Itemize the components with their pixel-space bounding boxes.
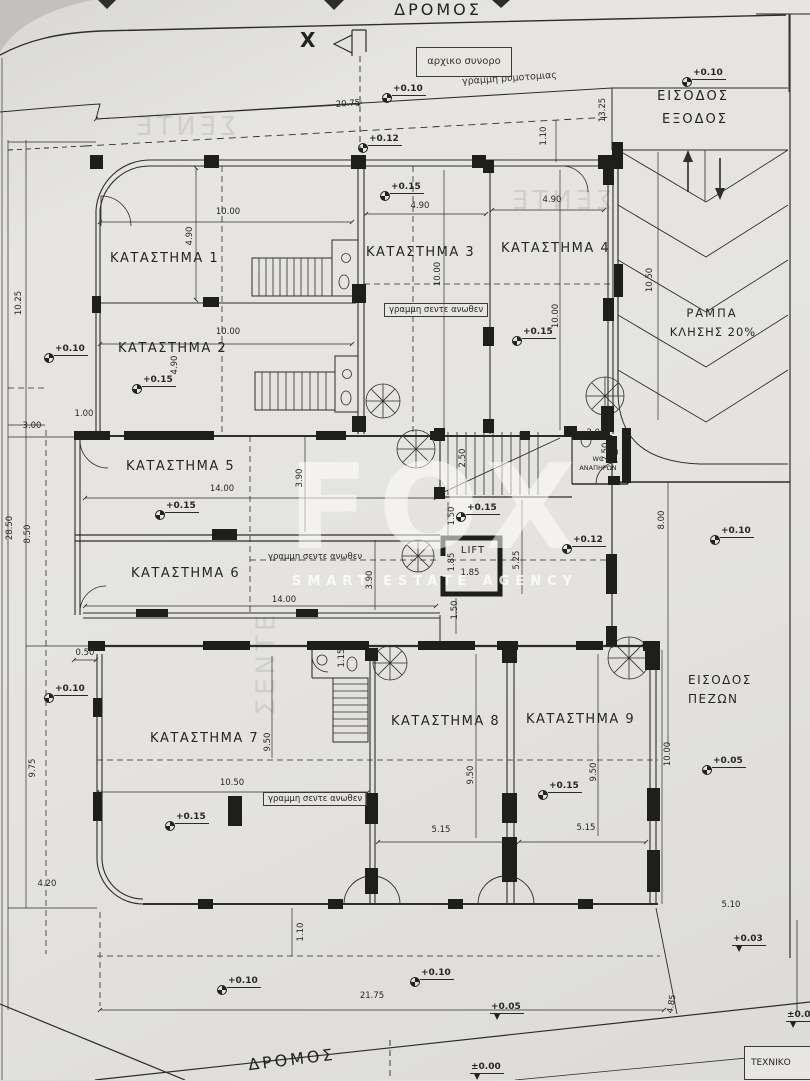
canopy-line-label: γραμμη σεντε ανωθεν	[268, 552, 362, 562]
dimension-label: 14.00	[210, 484, 234, 494]
dimension-label: 10.00	[216, 207, 240, 217]
dimension-label: 10.50	[645, 268, 655, 292]
dimension-label: 9.50	[589, 763, 599, 782]
dimension-label: 2.50	[458, 449, 468, 468]
bleedthrough-ghost-text: ΣΕΝΤΕ	[251, 611, 281, 716]
dimension-label: 4.90	[170, 356, 180, 375]
accessible-wc-label: WC ΑΝΑΠΗΡΩΝ	[570, 455, 626, 473]
level-mark: +0.15	[522, 327, 556, 339]
shop-label: ΚΑΤΑΣΤΗΜΑ 9	[526, 712, 635, 727]
canopy-line-label: γραμμη σεντε ανωθεν	[263, 792, 367, 806]
dimension-label: 4.85	[665, 994, 678, 1014]
level-mark: +0.10	[54, 684, 88, 696]
technical-title-text: ΤΕΧΝΙΚΟ	[751, 1058, 791, 1068]
wc-label-line2: ΑΝΑΠΗΡΩΝ	[579, 464, 616, 472]
floor-plan-page: { "texts": { "road_top": "ΔΡΟΜΟΣ", "road…	[0, 0, 810, 1080]
level-mark: +0.10	[227, 976, 261, 988]
dimension-label: 5.25	[512, 551, 522, 570]
level-mark: +0.15	[390, 182, 424, 194]
dimension-label: 3.90	[295, 469, 305, 488]
dimension-label: 9.50	[466, 766, 476, 785]
bleedthrough-ghost-text: ΣΕΝΤΕ	[132, 112, 237, 142]
dimension-label: 10.50	[220, 778, 244, 788]
dimension-label: 8.50	[23, 525, 33, 544]
shop-label: ΚΑΤΑΣΤΗΜΑ 6	[131, 566, 240, 581]
level-mark: +0.03	[732, 934, 766, 946]
shop-label: ΚΑΤΑΣΤΗΜΑ 7	[150, 731, 259, 746]
vehicle-exit-label: ΕΞΟΔΟΣ	[650, 112, 740, 127]
level-mark: +0.05	[490, 1002, 524, 1014]
level-mark: ±0.0	[786, 1010, 810, 1022]
dimension-label: 10.00	[663, 742, 673, 766]
shop-label: ΚΑΤΑΣΤΗΜΑ 8	[391, 714, 500, 729]
dimension-label: 8.00	[657, 511, 667, 530]
dimension-label: 5.15	[577, 823, 596, 833]
level-mark: +0.10	[692, 68, 726, 80]
ramp-label: ΡΑΜΠΑ	[662, 306, 762, 320]
dimension-label: 4.90	[411, 201, 430, 211]
canopy-line-label: γραμμη σεντε ανωθεν	[384, 303, 488, 317]
pedestrian-label-line1: ΕΙΣΟΔΟΣ	[688, 673, 752, 687]
dimension-label: 5.15	[432, 825, 451, 835]
dimension-label: 1.85	[447, 553, 457, 572]
dimension-label: 10.00	[216, 327, 240, 337]
shop-label: ΚΑΤΑΣΤΗΜΑ 3	[366, 245, 475, 260]
dimension-label: 2.50	[601, 443, 611, 462]
dimension-label: 9.75	[28, 759, 38, 778]
bleedthrough-ghost-text: ΣΕΝΤΕ	[508, 186, 613, 216]
level-mark: +0.15	[466, 503, 500, 515]
dimension-label: 1.85	[461, 568, 480, 578]
road-label-top: ΔΡΟΜΟΣ	[388, 0, 488, 19]
dimension-label: 1.10	[539, 127, 549, 146]
pedestrian-entrance-label: ΕΙΣΟΔΟΣ ΠΕΖΩΝ	[688, 671, 774, 708]
level-mark: +0.15	[548, 781, 582, 793]
ramp-slope-label: ΚΛΗΣΗΣ 20%	[654, 325, 772, 339]
dimension-label: 1.10	[296, 923, 306, 942]
dimension-label: 1.50	[450, 601, 460, 620]
pedestrian-label-line2: ΠΕΖΩΝ	[688, 692, 738, 706]
dimension-label: 9.50	[263, 733, 273, 752]
dimension-label: 4.20	[38, 879, 57, 889]
dimension-label: 5.10	[722, 900, 741, 910]
dimension-label: 14.00	[272, 595, 296, 605]
dimension-label: 4.90	[185, 227, 195, 246]
technical-title-box: ΤΕΧΝΙΚΟ	[744, 1046, 810, 1080]
dimension-label: 21.75	[360, 991, 384, 1001]
shop-label: ΚΑΤΑΣΤΗΜΑ 5	[126, 459, 235, 474]
level-mark: +0.15	[165, 501, 199, 513]
dimension-label: 10.00	[551, 304, 561, 328]
level-mark: +0.10	[720, 526, 754, 538]
section-mark-label: X	[300, 28, 315, 52]
dimension-label: 3.90	[365, 571, 375, 590]
dimension-label: 10.00	[433, 262, 443, 286]
dimension-label: 3.00	[23, 421, 42, 431]
level-mark: +0.12	[368, 134, 402, 146]
vehicle-entry-label: ΕΙΣΟΔΟΣ	[648, 89, 738, 104]
level-mark: ±0.00	[470, 1062, 504, 1074]
dimension-label: 1.15	[337, 649, 347, 668]
dimension-label: 0.50	[76, 648, 95, 658]
dimension-label: 13.25	[598, 98, 608, 122]
level-mark: +0.12	[572, 535, 606, 547]
level-mark: +0.05	[712, 756, 746, 768]
dimension-label: 10.25	[14, 291, 24, 315]
dimension-label: 1.00	[75, 409, 94, 419]
level-mark: +0.10	[54, 344, 88, 356]
dimension-label: 20.75	[336, 98, 361, 110]
original-boundary-label: αρχικο συνορο	[416, 47, 512, 77]
annotation-layer: ΔΡΟΜΟΣ αρχικο συνορο γραμμη ρυμοτομιας Ε…	[0, 0, 810, 1080]
level-mark: +0.15	[142, 375, 176, 387]
shop-label: ΚΑΤΑΣΤΗΜΑ 4	[501, 241, 610, 256]
level-mark: +0.15	[175, 812, 209, 824]
dimension-label: 28.50	[5, 516, 15, 540]
level-mark: +0.10	[392, 84, 426, 96]
level-mark: +0.10	[420, 968, 454, 980]
dimension-label: 2.05	[587, 428, 606, 438]
shop-label: ΚΑΤΑΣΤΗΜΑ 1	[110, 251, 219, 266]
shop-label: ΚΑΤΑΣΤΗΜΑ 2	[118, 341, 227, 356]
road-label-bottom: ΔΡΟΜΟΣ	[247, 1045, 336, 1075]
